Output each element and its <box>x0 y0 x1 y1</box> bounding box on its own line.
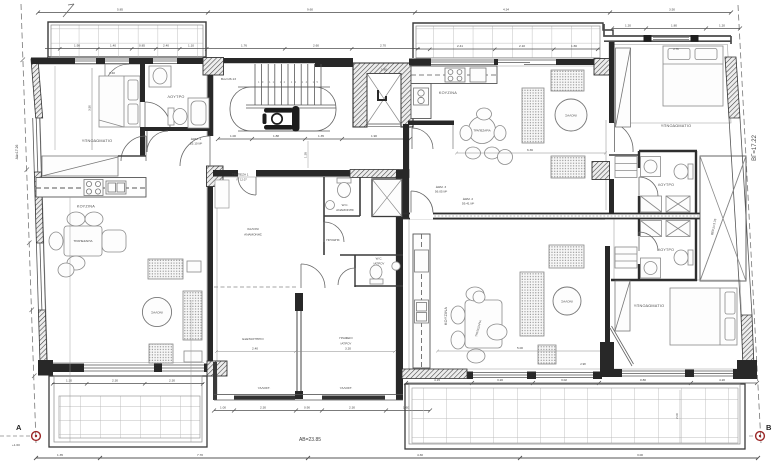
svg-text:ΒΓ=17.22: ΒΓ=17.22 <box>752 134 758 160</box>
svg-text:2.00: 2.00 <box>675 413 679 419</box>
svg-text:5.00: 5.00 <box>517 346 523 350</box>
svg-text:ΚΟΥΖΙΝΑ: ΚΟΥΖΙΝΑ <box>77 205 95 209</box>
svg-text:ΣΑΛΟΝΙ: ΣΑΛΟΝΙ <box>561 300 573 304</box>
svg-text:ΑΝΑΜΟΝΗΣ: ΑΝΑΜΟΝΗΣ <box>244 233 262 237</box>
svg-text:ΤΡΑΠΕΖΑ 1: ΤΡΑΠΕΖΑ 1 <box>232 173 249 177</box>
svg-text:1.40: 1.40 <box>110 44 116 48</box>
svg-text:1.30: 1.30 <box>66 379 72 383</box>
svg-text:1.88: 1.88 <box>273 134 279 138</box>
svg-text:ΥΑΛΟΣΤ.: ΥΑΛΟΣΤ. <box>258 386 271 390</box>
svg-text:2.10: 2.10 <box>519 44 525 48</box>
svg-text:1.35: 1.35 <box>57 453 63 457</box>
svg-text:∆ΩΜ. 3: ∆ΩΜ. 3 <box>436 185 447 189</box>
svg-text:ΣΑΛΟΝΙ: ΣΑΛΟΝΙ <box>151 311 163 315</box>
svg-text:6.36: 6.36 <box>527 148 533 152</box>
svg-text:1.20: 1.20 <box>719 24 725 28</box>
svg-text:ΠΡΟΘΗΚ: ΠΡΟΘΗΚ <box>326 238 340 242</box>
svg-text:3.50: 3.50 <box>88 105 92 111</box>
svg-text:56.05 Μ²: 56.05 Μ² <box>435 190 447 194</box>
svg-text:ΕΞΕΤΑΣΤΗΡΙΟ: ΕΞΕΤΑΣΤΗΡΙΟ <box>242 337 264 341</box>
svg-text:0.80: 0.80 <box>640 378 646 382</box>
svg-text:ΛΟΥΤΡΟ: ΛΟΥΤΡΟ <box>167 95 184 99</box>
svg-text:ΤΡΑΠΕΖΑΡΙΑ: ΤΡΑΠΕΖΑΡΙΑ <box>473 129 490 133</box>
svg-text:2.41: 2.41 <box>457 44 463 48</box>
svg-text:1.90: 1.90 <box>74 44 80 48</box>
svg-text:A: A <box>16 423 22 432</box>
svg-text:4.20: 4.20 <box>719 378 725 382</box>
svg-text:5.85: 5.85 <box>117 8 123 12</box>
svg-text:2.40: 2.40 <box>252 347 258 351</box>
svg-text:2.70: 2.70 <box>380 44 386 48</box>
svg-text:ΥΠΝΟ∆ΩΜΑΤΙΟ: ΥΠΝΟ∆ΩΜΑΤΙΟ <box>661 124 692 128</box>
svg-text:1.60: 1.60 <box>403 406 409 410</box>
svg-text:B: B <box>766 423 772 432</box>
svg-text:Α∆=17.26: Α∆=17.26 <box>15 144 19 159</box>
svg-text:1.90: 1.90 <box>371 134 377 138</box>
svg-text:9.60: 9.60 <box>307 8 313 12</box>
svg-text:1.66: 1.66 <box>571 44 577 48</box>
svg-text:4.30: 4.30 <box>417 453 423 457</box>
svg-text:0.85: 0.85 <box>139 44 145 48</box>
svg-text:ΥΠΝΟ∆ΩΜΑΤΙΟ: ΥΠΝΟ∆ΩΜΑΤΙΟ <box>82 139 113 143</box>
svg-text:∆ΩΜ. 1: ∆ΩΜ. 1 <box>191 137 202 141</box>
svg-text:ΑΒ=23.85: ΑΒ=23.85 <box>299 437 321 443</box>
svg-text:ΥΠΝΟ∆ΩΜΑΤΙΟ: ΥΠΝΟ∆ΩΜΑΤΙΟ <box>634 304 665 308</box>
svg-text:4.34: 4.34 <box>503 8 509 12</box>
svg-text:2.30: 2.30 <box>260 406 266 410</box>
svg-text:25.10 Μ²: 25.10 Μ² <box>190 142 202 146</box>
svg-text:ΚΟΥΖΙΝΑ: ΚΟΥΖΙΝΑ <box>439 91 457 95</box>
svg-text:3.00: 3.00 <box>637 453 643 457</box>
svg-text:3.40: 3.40 <box>109 71 115 75</box>
svg-text:ΤΡΑΠΕΖΑΡΙΑ: ΤΡΑΠΕΖΑΡΙΑ <box>73 239 93 243</box>
svg-text:1.76: 1.76 <box>241 44 247 48</box>
svg-text:1.00: 1.00 <box>220 406 226 410</box>
svg-text:ΙΑΤΡΟΥ: ΙΑΤΡΟΥ <box>340 342 351 346</box>
svg-text:2.30: 2.30 <box>112 379 118 383</box>
svg-text:ΛΟΥΤΡΟ: ΛΟΥΤΡΟ <box>658 183 674 187</box>
svg-text:7.70: 7.70 <box>197 453 203 457</box>
svg-text:W.C.: W.C. <box>376 257 383 261</box>
svg-text:1.20: 1.20 <box>625 24 631 28</box>
svg-text:59.41 Μ²: 59.41 Μ² <box>462 202 474 206</box>
svg-text:4.15: 4.15 <box>434 378 440 382</box>
svg-text:ΣΑΛΟΝΙ: ΣΑΛΟΝΙ <box>565 114 577 118</box>
svg-text:1.00: 1.00 <box>230 134 236 138</box>
svg-text:2.98: 2.98 <box>580 362 586 366</box>
svg-text:2.60: 2.60 <box>313 44 319 48</box>
svg-text:1.80: 1.80 <box>671 24 677 28</box>
svg-text:ΥΓ 12.07: ΥΓ 12.07 <box>236 178 247 182</box>
svg-text:ΥΑΛΟΣΤ.: ΥΑΛΟΣΤ. <box>340 386 353 390</box>
svg-text:∆ΩΜ. 2: ∆ΩΜ. 2 <box>463 197 474 201</box>
svg-text:ΛΟΥΤΡΟ: ΛΟΥΤΡΟ <box>658 248 674 252</box>
svg-text:1.35: 1.35 <box>304 152 308 158</box>
svg-text:1.10: 1.10 <box>188 44 194 48</box>
svg-text:Βαν=26.13: Βαν=26.13 <box>221 77 236 81</box>
svg-text:0.90: 0.90 <box>304 406 310 410</box>
svg-text:3.20: 3.20 <box>497 378 503 382</box>
svg-text:+1.60: +1.60 <box>12 443 20 447</box>
svg-text:2.76: 2.76 <box>673 47 679 51</box>
svg-text:3.20: 3.20 <box>345 347 351 351</box>
svg-text:2.40: 2.40 <box>163 44 169 48</box>
svg-text:ΑΝΑΜΟΝΗΣ: ΑΝΑΜΟΝΗΣ <box>336 208 354 212</box>
svg-text:ΚΟΥΖΙΝΑ: ΚΟΥΖΙΝΑ <box>444 307 448 325</box>
svg-text:W.C.: W.C. <box>342 203 349 207</box>
svg-text:2.30: 2.30 <box>169 379 175 383</box>
svg-text:ΓΡΑΦΕΙΟ: ΓΡΑΦΕΙΟ <box>339 336 353 340</box>
svg-text:1.35: 1.35 <box>318 134 324 138</box>
svg-text:3.50: 3.50 <box>669 8 675 12</box>
svg-text:2.30: 2.30 <box>349 406 355 410</box>
svg-text:3.02: 3.02 <box>561 378 567 382</box>
svg-text:1.80: 1.80 <box>381 68 387 72</box>
svg-text:ΣΑΛΟΝΙ: ΣΑΛΟΝΙ <box>247 227 259 231</box>
